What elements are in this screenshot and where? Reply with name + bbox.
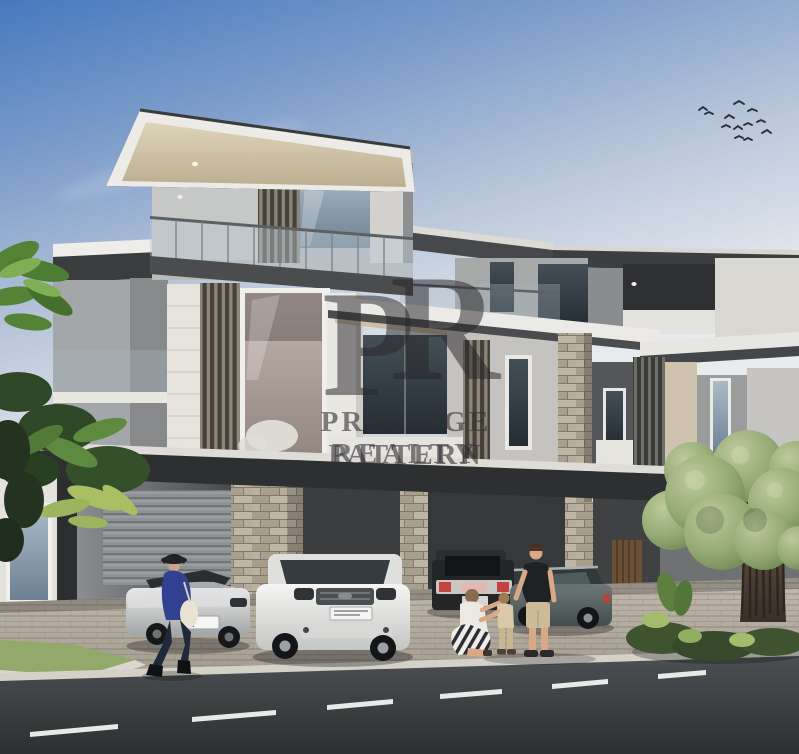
- child-shoe: [497, 649, 506, 655]
- child-leg: [507, 628, 513, 650]
- pickup-taillight: [497, 582, 509, 592]
- small-window: [509, 359, 528, 446]
- second-floor-louvers: [200, 283, 240, 452]
- child-head: [499, 593, 510, 604]
- woman-boot: [177, 660, 191, 674]
- clad-panel: [167, 284, 200, 454]
- child-leg: [499, 628, 505, 650]
- sedan-headlight: [230, 598, 247, 607]
- balcony-louvers: [463, 340, 490, 477]
- dark-wall-window: [606, 391, 623, 445]
- soffit-light: [177, 195, 182, 199]
- left-parapet: [53, 392, 168, 403]
- man-leg: [529, 628, 536, 652]
- scene-illustration: [0, 0, 799, 754]
- man-shoe: [524, 650, 538, 657]
- soffit-light: [192, 162, 198, 166]
- white-suv: [256, 554, 410, 661]
- child-top: [497, 603, 514, 628]
- pickup-rear-window: [445, 556, 500, 576]
- kneeling-woman-head: [465, 589, 479, 603]
- child-shoe: [507, 649, 516, 655]
- suv-headlight: [294, 588, 314, 600]
- pickup-taillight: [439, 582, 451, 592]
- kneeling-woman-shoe: [483, 650, 492, 656]
- recessed-terrace: [623, 264, 715, 318]
- wagon-taillight: [603, 594, 610, 603]
- suv-headlight: [376, 588, 396, 600]
- man-shoe: [540, 650, 554, 657]
- suv-license-plate: [330, 607, 372, 620]
- man-leg: [541, 628, 548, 652]
- soffit-light: [631, 282, 636, 286]
- man-tshirt: [522, 562, 553, 605]
- architectural-render-photo: P R PRESTIGE PATTERN REALTY: [0, 0, 799, 754]
